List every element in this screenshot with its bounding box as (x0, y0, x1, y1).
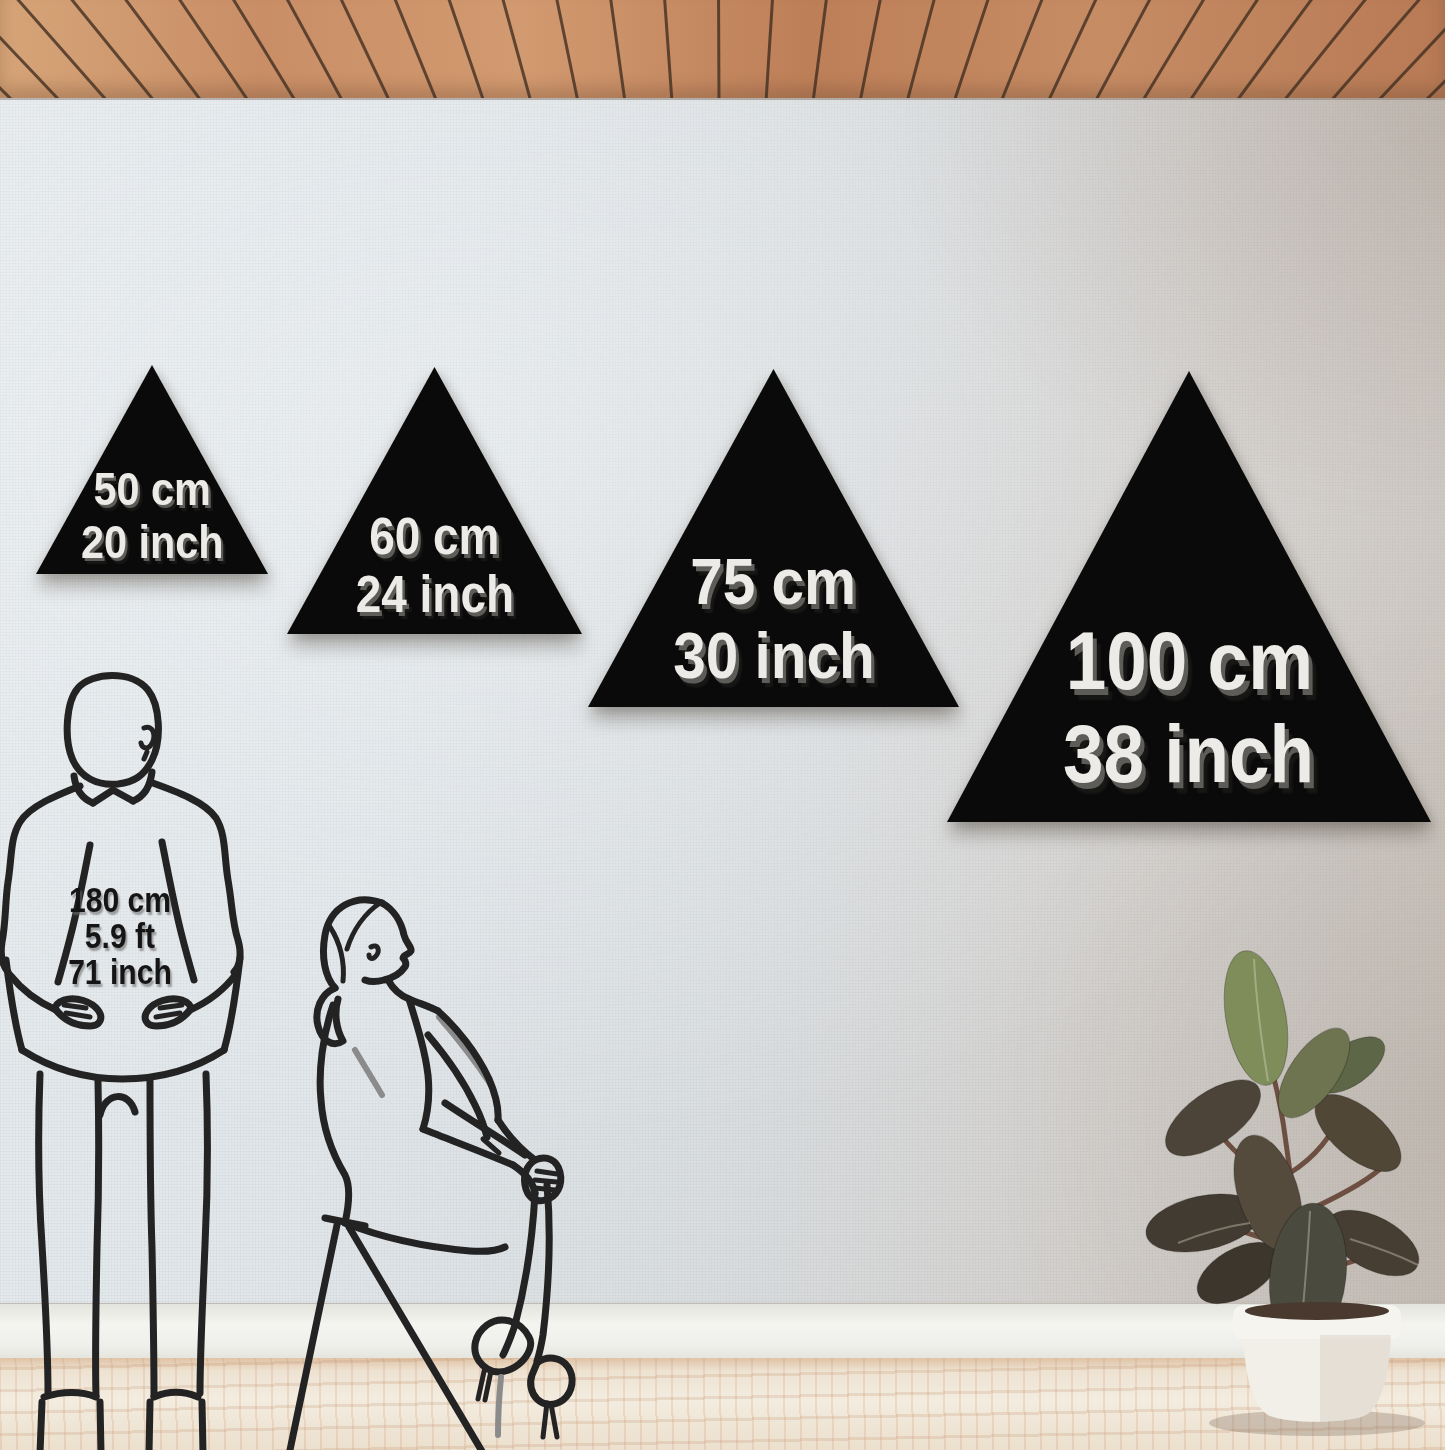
triangle-60cm: 60 cm 24 inch (287, 367, 582, 624)
triangle-75cm: 75 cm 30 inch (588, 369, 959, 693)
wood-ceiling (0, 0, 1445, 100)
triangle-60cm-label-cm: 60 cm (369, 508, 499, 566)
man-height-cm: 180 cm (48, 882, 192, 918)
man-ear-line (141, 727, 154, 748)
triangle-50cm: 50 cm 20 inch (36, 365, 268, 568)
man-height-inch: 71 inch (48, 954, 192, 990)
triangle-75cm-label-cm: 75 cm (691, 545, 857, 619)
triangle-100cm-shape: 100 cm 38 inch (947, 371, 1431, 822)
sitting-woman-figure (285, 885, 605, 1450)
standing-man-figure (0, 660, 280, 1450)
triangle-100cm: 100 cm 38 inch (947, 371, 1431, 800)
triangle-50cm-label-inch: 20 inch (81, 516, 224, 568)
triangle-75cm-shape: 75 cm 30 inch (588, 369, 959, 707)
size-chart-scene: 50 cm 20 inch 60 cm 24 inch 75 cm 30 inc… (0, 0, 1445, 1450)
ceiling-slats-svg (0, 0, 1445, 100)
triangle-60cm-shape: 60 cm 24 inch (287, 367, 582, 634)
triangle-75cm-label-inch: 30 inch (673, 619, 875, 693)
potted-plant (1118, 943, 1445, 1450)
triangle-50cm-shape: 50 cm 20 inch (36, 365, 268, 574)
woman-high-heels (475, 1320, 572, 1437)
triangle-100cm-label-inch: 38 inch (1063, 708, 1314, 800)
triangle-100cm-label-cm: 100 cm (1065, 615, 1312, 707)
triangle-60cm-label-inch: 24 inch (355, 566, 513, 624)
man-height-label: 180 cm 5.9 ft 71 inch (48, 882, 192, 990)
triangle-50cm-label-cm: 50 cm (93, 463, 210, 515)
plant-pot (1233, 1302, 1401, 1422)
man-height-ft: 5.9 ft (48, 918, 192, 954)
woman-ear-line (369, 946, 378, 959)
heel-shadow-line (498, 1377, 501, 1435)
